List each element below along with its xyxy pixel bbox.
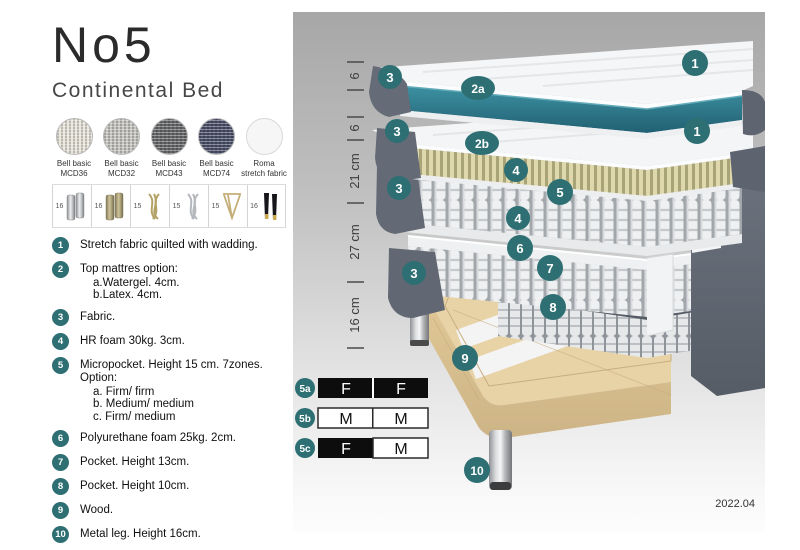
list-item-subtext: b. Medium/ medium [93, 398, 292, 411]
badge-1: 1 [684, 118, 710, 144]
fabric-swatch-image [103, 118, 140, 155]
svg-text:3: 3 [386, 70, 393, 85]
fabric-swatch-label: Roma stretch fabric [241, 159, 287, 179]
firmness-cell: F [396, 381, 406, 398]
dimension-label: 27 cm [347, 224, 362, 259]
spec-list: 1 Stretch fabric quilted with wadding. 2… [52, 237, 292, 543]
badge-2a: 2a [461, 76, 495, 100]
badge-4: 4 [504, 158, 528, 182]
page-subtitle: Continental Bed [52, 79, 292, 103]
list-item-text: Top mattres option: [80, 263, 180, 277]
firmness-cell: M [394, 411, 407, 428]
list-item: 5 Micropocket. Height 15 cm. 7zones. Opt… [52, 357, 292, 424]
list-item-text: HR foam 30kg. 3cm. [80, 335, 185, 349]
fabric-swatch: Roma stretch fabric [242, 118, 286, 179]
metal-leg-front [489, 430, 512, 490]
leg-options: 16 16 15 15 [52, 184, 286, 228]
badge-10: 10 [464, 457, 490, 483]
fabric-swatch-label: Bell basic MCD43 [152, 159, 186, 179]
list-item: 10 Metal leg. Height 16cm. [52, 526, 292, 543]
dimension-label: 6 [347, 124, 362, 131]
list-item-text: Pocket. Height 13cm. [80, 456, 189, 470]
badge-8: 8 [540, 294, 566, 320]
fabric-swatch: Bell basic MCD43 [147, 118, 191, 179]
fabric-swatch-label: Bell basic MCD74 [199, 159, 233, 179]
fabric-swatch: Bell basic MCD32 [100, 118, 144, 179]
list-item: 1 Stretch fabric quilted with wadding. [52, 237, 292, 254]
list-item-subtext: c. Firm/ medium [93, 411, 292, 424]
svg-text:4: 4 [512, 163, 520, 178]
bed-cutaway-panel: 6 6 21 cm 27 cm 16 cm [293, 0, 765, 533]
brass-cylinder-legs-icon [103, 191, 127, 221]
list-item-subtext: a. Firm/ firm [93, 386, 292, 399]
gold-hairpin-leg-icon [220, 191, 244, 221]
list-item-text: Metal leg. Height 16cm. [80, 528, 201, 542]
svg-text:10: 10 [470, 464, 484, 478]
leg-option: 16 [91, 185, 130, 227]
list-item-text: Polyurethane foam 25kg. 2cm. [80, 432, 236, 446]
svg-text:3: 3 [410, 266, 417, 281]
firmness-cell: M [339, 411, 352, 428]
badge-7: 7 [537, 255, 563, 281]
firmness-cell: F [341, 441, 351, 458]
svg-text:8: 8 [549, 300, 556, 315]
fabric-swatch-image [151, 118, 188, 155]
fabric-swatch-image [246, 118, 283, 155]
dimension-label: 16 cm [347, 297, 362, 332]
list-item: 8 Pocket. Height 10cm. [52, 478, 292, 495]
fabric-swatches: Bell basic MCD36 Bell basic MCD32 Bell b… [52, 118, 286, 179]
fabric-swatch: Bell basic MCD74 [195, 118, 239, 179]
badge-2b: 2b [465, 131, 499, 155]
svg-text:2a: 2a [471, 82, 485, 96]
firmness-row-label: 5c [299, 444, 311, 455]
badge-5: 5 [547, 179, 573, 205]
list-number-badge: 2 [52, 261, 69, 278]
svg-text:2b: 2b [475, 137, 489, 151]
list-item-text: Pocket. Height 10cm. [80, 480, 189, 494]
list-number-badge: 5 [52, 357, 69, 374]
badge-9: 9 [452, 345, 478, 371]
svg-text:3: 3 [395, 181, 402, 196]
fabric-swatch-image [198, 118, 235, 155]
badge-3: 3 [378, 65, 402, 89]
fabric-swatch: Bell basic MCD36 [52, 118, 96, 179]
leg-option: 15 [130, 185, 169, 227]
list-item: 2 Top mattres option: a.Watergel. 4cm. b… [52, 261, 292, 302]
firmness-cell: F [341, 381, 351, 398]
gold-twisted-legs-icon [142, 191, 166, 221]
firmness-row-label: 5a [299, 384, 311, 395]
svg-text:4: 4 [514, 211, 522, 226]
silver-twisted-legs-icon [181, 191, 205, 221]
list-item: 3 Fabric. [52, 309, 292, 326]
list-item-text: Fabric. [80, 311, 115, 325]
leg-option: 16 [247, 185, 286, 227]
badge-3: 3 [387, 176, 411, 200]
list-number-badge: 4 [52, 333, 69, 350]
bed-cutaway-illustration: 6 6 21 cm 27 cm 16 cm [293, 0, 765, 533]
list-number-badge: 7 [52, 454, 69, 471]
leg-option: 15 [208, 185, 247, 227]
dimension-label: 6 [347, 72, 362, 79]
fabric-swatch-image [56, 118, 93, 155]
badge-3: 3 [385, 119, 409, 143]
badge-6: 6 [507, 235, 533, 261]
badge-1: 1 [682, 50, 708, 76]
fabric-swatch-label: Bell basic MCD36 [57, 159, 91, 179]
leg-option: 16 [52, 185, 91, 227]
leg-option: 15 [169, 185, 208, 227]
svg-text:6: 6 [516, 241, 523, 256]
svg-text:3: 3 [393, 124, 400, 139]
list-item-text: Micropocket. Height 15 cm. 7zones. Optio… [80, 359, 292, 386]
list-item-text: Wood. [80, 504, 113, 518]
list-item: 7 Pocket. Height 13cm. [52, 454, 292, 471]
chrome-cylinder-legs-icon [64, 191, 88, 221]
fabric-swatch-label: Bell basic MCD32 [104, 159, 138, 179]
page-title: No5 [52, 20, 292, 70]
svg-text:5: 5 [556, 185, 563, 200]
svg-text:1: 1 [691, 56, 698, 71]
svg-text:9: 9 [461, 351, 468, 366]
firmness-cell: M [394, 441, 407, 458]
list-item: 6 Polyurethane foam 25kg. 2cm. [52, 430, 292, 447]
firmness-row-label: 5b [299, 414, 311, 425]
svg-text:7: 7 [546, 261, 553, 276]
version-date: 2022.04 [715, 498, 755, 510]
dimension-label: 21 cm [347, 153, 362, 188]
list-number-badge: 3 [52, 309, 69, 326]
list-number-badge: 1 [52, 237, 69, 254]
badge-3: 3 [402, 261, 426, 285]
list-number-badge: 9 [52, 502, 69, 519]
list-number-badge: 6 [52, 430, 69, 447]
list-item-subtext: a.Watergel. 4cm. [93, 277, 180, 290]
list-item: 4 HR foam 30kg. 3cm. [52, 333, 292, 350]
list-item-subtext: b.Latex. 4cm. [93, 289, 180, 302]
list-item-text: Stretch fabric quilted with wadding. [80, 239, 258, 253]
badge-4: 4 [506, 206, 530, 230]
list-number-badge: 10 [52, 526, 69, 543]
list-item: 9 Wood. [52, 502, 292, 519]
svg-text:1: 1 [693, 124, 700, 139]
black-legs-brass-tip-icon [259, 191, 283, 221]
list-number-badge: 8 [52, 478, 69, 495]
spec-column: No5 Continental Bed Bell basic MCD36 Bel… [52, 0, 292, 550]
